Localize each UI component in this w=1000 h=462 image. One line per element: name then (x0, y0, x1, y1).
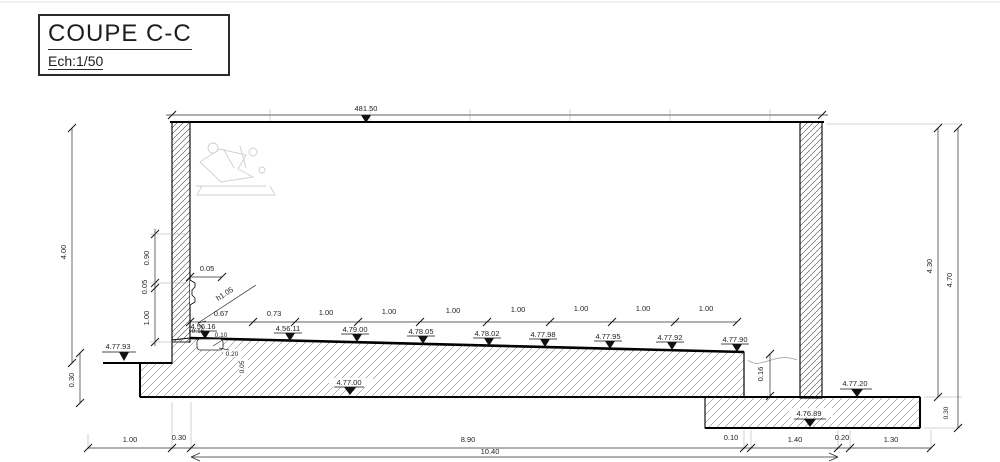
leader-text: h1.05 (214, 285, 235, 303)
dim-value: 1.00 (382, 307, 397, 316)
dim-value: 0.16 (756, 367, 765, 382)
elevation-value: 4.77.00 (336, 378, 361, 387)
dim-value: 0.20 (835, 433, 850, 442)
elevation-marker-floor-8: 4.77.90 (721, 335, 749, 352)
elevation-value: 4.79.00 (342, 325, 367, 334)
dim-value: 1.00 (699, 304, 714, 313)
dim-value: 0.30 (172, 433, 187, 442)
dim-value: 0.10 (724, 433, 739, 442)
elevation-marker-left-ground: 4.77.93 (102, 342, 136, 361)
section-drawing: 481.50 4.00 0.30 0.90 0.05 (0, 0, 1000, 462)
dim-value: 0.73 (267, 309, 282, 318)
floor-dim-chain: 0.67 0.73 1.00 1.00 1.00 1.00 1.00 1.00 … (186, 304, 741, 326)
dim-value: 0.10 (215, 332, 228, 339)
elevation-value: 4.56.16 (190, 322, 215, 331)
dim-value: 1.00 (446, 306, 461, 315)
dim-value: 1.00 (123, 435, 138, 444)
dim-value: 1.30 (884, 435, 899, 444)
elevation-value: 4.77.92 (657, 333, 682, 342)
elevation-marker-floor-6: 4.77.95 (594, 332, 622, 349)
elevation-value: 4.77.20 (842, 379, 867, 388)
elevation-value: 4.56.11 (276, 324, 300, 333)
dim-value: 0.90 (142, 251, 151, 266)
wall-ledge-profile (190, 280, 195, 305)
dim-value: 1.40 (788, 435, 803, 444)
elevation-value: 481.50 (355, 104, 378, 113)
left-footing-dim: 0.30 (67, 349, 84, 407)
watermark-logo (196, 143, 275, 195)
elevation-marker-floor-3: 4.78.05 (407, 327, 435, 344)
dim-value: 8.90 (461, 435, 476, 444)
elevation-marker-floor-1: 4.56.11 (274, 324, 302, 341)
dim-value: 0.05 (239, 360, 246, 373)
dim-value: 1.00 (574, 304, 589, 313)
dim-value: 0.30 (67, 373, 76, 388)
elevation-value: 4.78.02 (474, 329, 499, 338)
left-height-dim: 4.00 (59, 124, 76, 367)
dim-value: 4.00 (59, 245, 68, 260)
trench-ground-squiggle (748, 358, 797, 364)
elevation-marker-lower-slab-top: 4.77.20 (840, 379, 872, 397)
floor-slab (140, 338, 744, 397)
right-wall (800, 122, 822, 398)
dim-value: 4.70 (945, 273, 954, 288)
ledge-dim: 0.05 (186, 264, 226, 281)
dim-value: 1.00 (636, 304, 651, 313)
dim-value: 1.00 (511, 305, 526, 314)
elevation-marker-floor-4: 4.78.02 (473, 329, 501, 346)
step-height-dim: 0.16 (756, 350, 774, 400)
drawing-sheet: COUPE C-C Ech:1/50 (0, 0, 1000, 462)
top-dim (166, 109, 828, 121)
elevation-marker-floor-5: 4.77.98 (529, 330, 557, 347)
dim-value: 4.30 (925, 259, 934, 274)
elevation-value: 4.77.98 (530, 330, 555, 339)
dim-value: 0.05 (200, 264, 215, 273)
dim-value: 0.67 (214, 309, 229, 318)
elevation-marker-top: 481.50 (355, 104, 378, 123)
elevation-value: 4.77.90 (722, 335, 747, 344)
left-wall (172, 122, 190, 342)
elevation-value: 4.78.05 (408, 327, 433, 336)
elevation-value: 4.76.89 (796, 409, 821, 418)
dim-value: 10.40 (481, 447, 500, 456)
elevation-value: 4.77.95 (595, 332, 620, 341)
elevation-value: 4.77.93 (105, 342, 130, 351)
dim-value: 0.05 (140, 280, 149, 295)
elevation-marker-floor-2: 4.79.00 (341, 325, 369, 342)
dim-value: 0.20 (226, 351, 239, 358)
bottom-total-dim: 10.40 (191, 447, 838, 461)
dim-value: 0.30 (943, 406, 950, 419)
elevation-marker-floor-7: 4.77.92 (656, 333, 684, 350)
dim-value: 1.00 (319, 308, 334, 317)
dim-value: 1.00 (142, 311, 151, 326)
elevation-marker-floor-0: 4.56.16 (189, 322, 217, 339)
